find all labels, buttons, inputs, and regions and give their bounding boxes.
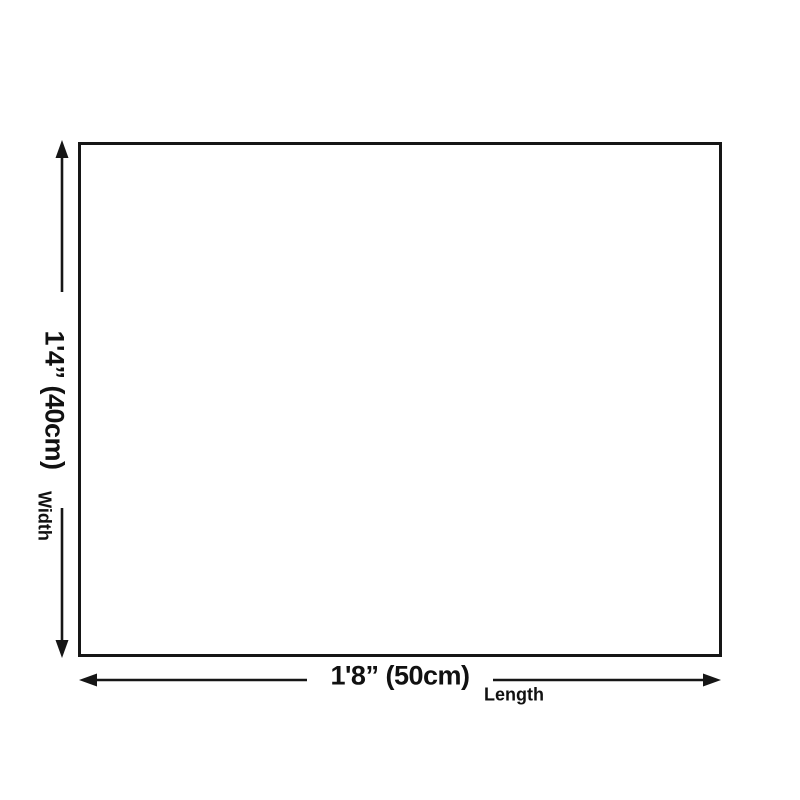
arrowhead-right-icon [703,674,721,687]
arrowhead-left-icon [79,674,97,687]
arrowhead-down-icon [56,640,69,658]
width-axis-label: Width [34,491,55,541]
length-axis-label: Length [484,685,544,706]
width-dimension-label: 1'4” (40cm) [39,331,70,470]
dimension-diagram: 1'4” (40cm) Width 1'8” (50cm) Length [0,0,800,800]
arrowhead-up-icon [56,140,69,158]
product-panel [78,142,722,657]
length-dimension-label: 1'8” (50cm) [331,661,470,692]
